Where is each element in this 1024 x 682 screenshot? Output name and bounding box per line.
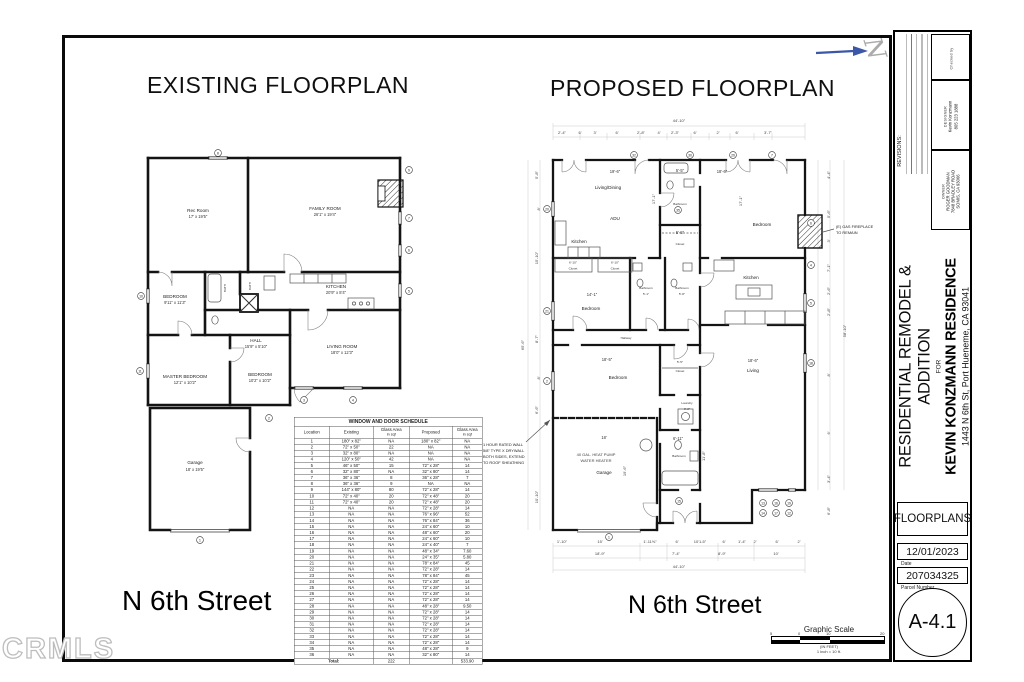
room-label: ADU (610, 216, 620, 221)
dim: 5'-1" (643, 292, 649, 296)
dim: 18' (601, 435, 607, 440)
room-label: Bedroom (609, 375, 628, 380)
room-label: Living (747, 368, 759, 373)
room-label: Hallway (621, 336, 632, 340)
dim-label: 65'-6" (520, 339, 525, 350)
location-tag: 5 (808, 300, 815, 307)
svg-text:11: 11 (138, 369, 142, 373)
dim-label: 8' (826, 373, 831, 376)
room-label: Closet (676, 369, 685, 373)
dim-label: 6' (616, 130, 619, 135)
svg-text:17: 17 (774, 511, 778, 515)
schedule-header: Existing (329, 426, 373, 438)
dim: 5'-5" (677, 360, 683, 364)
dim-label: 2' (798, 539, 801, 544)
dim-label: 3'-7" (764, 130, 773, 135)
title-block: REVISIONS: Checked by DESIGNER Kevin Kon… (893, 30, 972, 662)
scale-tick: 20 (880, 631, 884, 636)
dim: 6'-10" (569, 261, 577, 265)
dim: 17'-1" (651, 193, 656, 204)
svg-text:16: 16 (774, 501, 778, 505)
dim-label: 6'-8" (826, 506, 831, 515)
street-label-proposed: N 6th Street (628, 591, 761, 620)
rated-wall-note: TO ROOF SHEATHING (483, 460, 524, 465)
svg-text:4: 4 (352, 398, 354, 402)
dim-label: 6' (723, 539, 726, 544)
dim-label: 3' (594, 130, 597, 135)
sheet-number: A-4.1 (898, 588, 967, 657)
dim-label: 4' (658, 130, 661, 135)
rated-wall-note: 5/8" TYPE X DRYWALL (483, 448, 525, 453)
svg-text:4: 4 (810, 263, 812, 267)
room-label: Bathroom (673, 202, 687, 206)
svg-text:30: 30 (688, 153, 692, 157)
owner-cell: OWNER ROGER GOODMAN 7848 BRADLEY ROAD SO… (931, 150, 970, 230)
dim-label: 6' (579, 130, 582, 135)
location-tag: 12 (786, 510, 793, 517)
location-tag: 16 (773, 500, 780, 507)
location-tag: 5 (406, 288, 413, 295)
fireplace-note: TO REMAIN (836, 230, 858, 235)
room-dim: 20'9" x 8'4" (326, 290, 347, 295)
dim: 5'-5" (676, 168, 685, 173)
dim-label: 10' (773, 551, 778, 556)
project-for: FOR (935, 359, 942, 373)
svg-text:2: 2 (268, 416, 270, 420)
dim-label: 8'-9" (718, 551, 727, 556)
project-title: RESIDENTIAL REMODEL & ADDITION (896, 230, 934, 502)
room-label: Bedroom (582, 306, 601, 311)
dim-label: 7'-1" (826, 263, 831, 272)
location-tag: 4 (808, 262, 815, 269)
svg-text:3: 3 (303, 398, 305, 402)
dim: 18'-6" (748, 358, 759, 363)
dim-label: 2' (754, 539, 757, 544)
dim-label: 5'-6" (826, 209, 831, 218)
dim-label: 6' (676, 539, 679, 544)
room-label: Closet (676, 242, 685, 246)
dim-label: 2'-8" (637, 130, 646, 135)
dim-label: 2'-8" (826, 307, 831, 316)
svg-text:6: 6 (810, 221, 812, 225)
dim-label: 8' (536, 207, 541, 210)
dim: 11'-8" (701, 450, 706, 460)
location-tag: 20 (544, 206, 551, 213)
dim-label: 58'-10" (842, 324, 847, 337)
schedule-header: Glass Areain sqf (373, 426, 409, 438)
room-label: BEDROOM (163, 294, 187, 299)
schedule-title: WINDOW AND DOOR SCHEDULE (294, 417, 482, 426)
location-tag: 17 (773, 510, 780, 517)
svg-text:15: 15 (677, 499, 681, 503)
location-tag: 9 (406, 167, 413, 174)
room-dim: 10'2" x 10'2" (249, 378, 272, 383)
dim-label: 1'-11⅝" (643, 539, 657, 544)
dim-label: 6' (776, 539, 779, 544)
svg-text:35: 35 (676, 208, 680, 212)
svg-text:19: 19 (787, 501, 791, 505)
dim: 6'-11" (673, 436, 684, 441)
dim-label: 3'-4" (826, 474, 831, 483)
dim: 6'-10" (611, 261, 619, 265)
room-label: Rec Room (187, 208, 209, 213)
sheet-title-box: FLOORPLANS (897, 502, 968, 536)
project-title-block: RESIDENTIAL REMODEL & ADDITION FOR KEVIN… (895, 230, 970, 502)
location-tag: 18 (808, 360, 815, 367)
graphic-scale: Graphic Scale 5 0 10 20 (IN FEET) 1 inch… (768, 625, 890, 659)
location-tag: 2 (266, 415, 273, 422)
schedule-header: Proposed (409, 426, 452, 438)
svg-text:18: 18 (809, 361, 813, 365)
date-box: 12/01/2023 (897, 543, 968, 560)
room-dim: 17' x 19'5" (189, 214, 208, 219)
room-label: Laundry (681, 401, 693, 405)
location-tag: 29 (730, 152, 737, 159)
location-tag: 1 (197, 537, 204, 544)
svg-text:14: 14 (761, 511, 765, 515)
dim-label: 8' (536, 376, 541, 379)
dim-label: 1'-4" (738, 539, 747, 544)
proposed-floorplan: 19'-6" Living/Dining ADU Kitchen 17'-1" … (478, 113, 898, 633)
scale-tick: 10 (826, 631, 830, 636)
designer-cell: DESIGNER Kevin Konzmann 805 223 1888 (931, 80, 970, 150)
room-dim: 12'1" x 10'2" (174, 380, 197, 385)
svg-text:32: 32 (632, 153, 636, 157)
location-tag: 11 (137, 368, 144, 375)
dim: 17'-1" (738, 195, 743, 206)
dim-label: 15'-10" (534, 251, 539, 264)
dim-label: 2' (717, 130, 720, 135)
location-tag: 4 (350, 397, 357, 404)
dim: 19'-6" (622, 465, 627, 476)
room-label: Kitchen (743, 275, 759, 280)
room-label: KITCHEN (326, 284, 346, 289)
svg-text:5: 5 (810, 301, 812, 305)
location-tag: 35 (675, 207, 682, 214)
revisions-rows (906, 34, 932, 174)
svg-text:12: 12 (787, 511, 791, 515)
dim-label: 7'-4" (672, 551, 681, 556)
project-address: 1443 N 6th St, Port Hueneme, CA 93041 (960, 287, 970, 446)
room-label: BATH (248, 282, 252, 290)
dim: 18'-5" (602, 357, 613, 362)
dim-label: 10'1-5" (694, 539, 707, 544)
location-tag: 7 (769, 152, 776, 159)
location-tag: 6 (406, 247, 413, 254)
dim: 14'-1" (587, 292, 598, 297)
room-dim: 18' x 19'5" (186, 467, 205, 472)
room-label: Closet (611, 267, 620, 271)
dim-label: 8'-7" (534, 334, 539, 343)
room-label: Garage (596, 470, 612, 475)
checked-by-cell: Checked by (931, 34, 970, 80)
location-tag: 8 (215, 150, 222, 157)
dim-label: 6' (826, 431, 831, 434)
scale-tick: 0 (798, 631, 800, 636)
room-label: MASTER BEDROOM (163, 374, 207, 379)
dim-label: 4'-4" (826, 170, 831, 179)
dim-label: 3' (826, 239, 831, 242)
room-dim: 15'9" x 5'10" (245, 344, 268, 349)
location-tag: 3 (301, 397, 308, 404)
graphic-scale-bar: 5 0 10 20 (771, 636, 885, 644)
svg-text:6: 6 (408, 248, 410, 252)
room-label: Bathroom (639, 286, 653, 290)
location-tag: 14 (760, 510, 767, 517)
room-label: Bedroom (753, 222, 772, 227)
svg-text:8: 8 (217, 151, 219, 155)
svg-text:5: 5 (408, 289, 410, 293)
schedule-total-row: Total:222533.90 (294, 658, 482, 664)
dim: 5'-5" (676, 230, 685, 235)
room-dim: 18'0" x 12'3" (331, 350, 354, 355)
room-label: BATH (223, 284, 227, 292)
proposed-plan-title: PROPOSED FLOORPLAN (545, 75, 840, 102)
crmls-watermark: CRMLS (2, 633, 115, 666)
fireplace-note: (E) GAS FIREPLACE (836, 224, 874, 229)
svg-text:29: 29 (731, 153, 735, 157)
revisions-label: REVISIONS: (894, 128, 906, 174)
room-dim: 26'1" x 19'4" (314, 212, 337, 217)
room-label: HALL (250, 338, 262, 343)
dim-label: 6' (736, 130, 739, 135)
dim-label: 2'-4" (558, 130, 567, 135)
room-label: Bathroom (675, 286, 689, 290)
room-label: LIVING ROOM (327, 344, 358, 349)
dim: 18'-6" (717, 169, 728, 174)
svg-text:20: 20 (545, 207, 549, 211)
rated-wall-note: 1 HOUR RATED WALL (483, 442, 524, 447)
scale-tick: 5 (770, 631, 772, 636)
schedule-header: Glass Areain sqf (452, 426, 482, 438)
svg-text:2: 2 (546, 379, 548, 383)
dim: 44'-10" (673, 564, 686, 569)
location-tag: 2 (544, 378, 551, 385)
dim-label: 2'-3" (671, 130, 680, 135)
dim-label: 15' (597, 539, 602, 544)
svg-text:21: 21 (545, 309, 549, 313)
room-label: BEDROOM (248, 372, 272, 377)
water-heater-note: WATER HEATER (580, 458, 611, 463)
location-tag: 19 (786, 500, 793, 507)
svg-text:9: 9 (408, 168, 410, 172)
room-label: FAMILY ROOM (309, 206, 341, 211)
existing-plan-title: EXISTING FLOORPLAN (118, 72, 438, 99)
water-heater-note: 40 GAL. HEAT PUMP (577, 452, 616, 457)
dim: 44'-10" (673, 118, 686, 123)
room-label: Living/Dining (595, 185, 622, 190)
dim-label: 1'-10" (557, 539, 568, 544)
dim-label: 10'-10" (534, 490, 539, 503)
dim: 19'-6" (610, 169, 621, 174)
svg-text:7: 7 (408, 216, 410, 220)
location-tag: 1 (606, 534, 613, 541)
location-tag: 21 (544, 308, 551, 315)
svg-text:10: 10 (139, 294, 143, 298)
location-tag: 10 (138, 293, 145, 300)
dim-label: 2'-6" (826, 286, 831, 295)
room-label: Kitchen (571, 239, 587, 244)
rated-wall-note: BOTH SIDES, EXTEND (483, 454, 525, 459)
svg-text:1: 1 (608, 535, 610, 539)
location-tag: 6 (808, 220, 815, 227)
room-dim: 9'11" x 11'3" (164, 300, 186, 305)
parcel-box: 207034325 (897, 567, 968, 584)
location-tag: 30 (687, 152, 694, 159)
schedule-header: Location (294, 426, 329, 438)
location-tag: 15 (676, 498, 683, 505)
scale-note-inch: 1 inch = 10 ft. (768, 650, 890, 655)
project-name: KEVIN KONZMANN RESIDENCE (943, 258, 959, 475)
svg-text:1: 1 (199, 538, 201, 542)
location-tag: 13 (760, 500, 767, 507)
dim-label: 18'-9" (595, 551, 606, 556)
dim-label: 5'-8" (534, 170, 539, 179)
dim: 5'-8" (679, 292, 685, 296)
room-label: Garage (187, 460, 203, 465)
drawing-sheet: CRMLS N EXISTING FLOORPLAN PROPOSED FLOO… (0, 0, 1024, 682)
dim-label: 6'-6" (534, 405, 539, 414)
svg-text:13: 13 (761, 501, 765, 505)
window-door-schedule: WINDOW AND DOOR SCHEDULELocationExisting… (294, 417, 482, 664)
svg-text:7: 7 (771, 153, 773, 157)
street-label-existing: N 6th Street (122, 585, 271, 617)
dim-label: 6' (694, 130, 697, 135)
dim: 3'-2" (684, 407, 690, 411)
location-tag: 7 (406, 215, 413, 222)
room-label: Closet (569, 267, 578, 271)
room-label: Bathroom (672, 454, 686, 458)
location-tag: 32 (631, 152, 638, 159)
